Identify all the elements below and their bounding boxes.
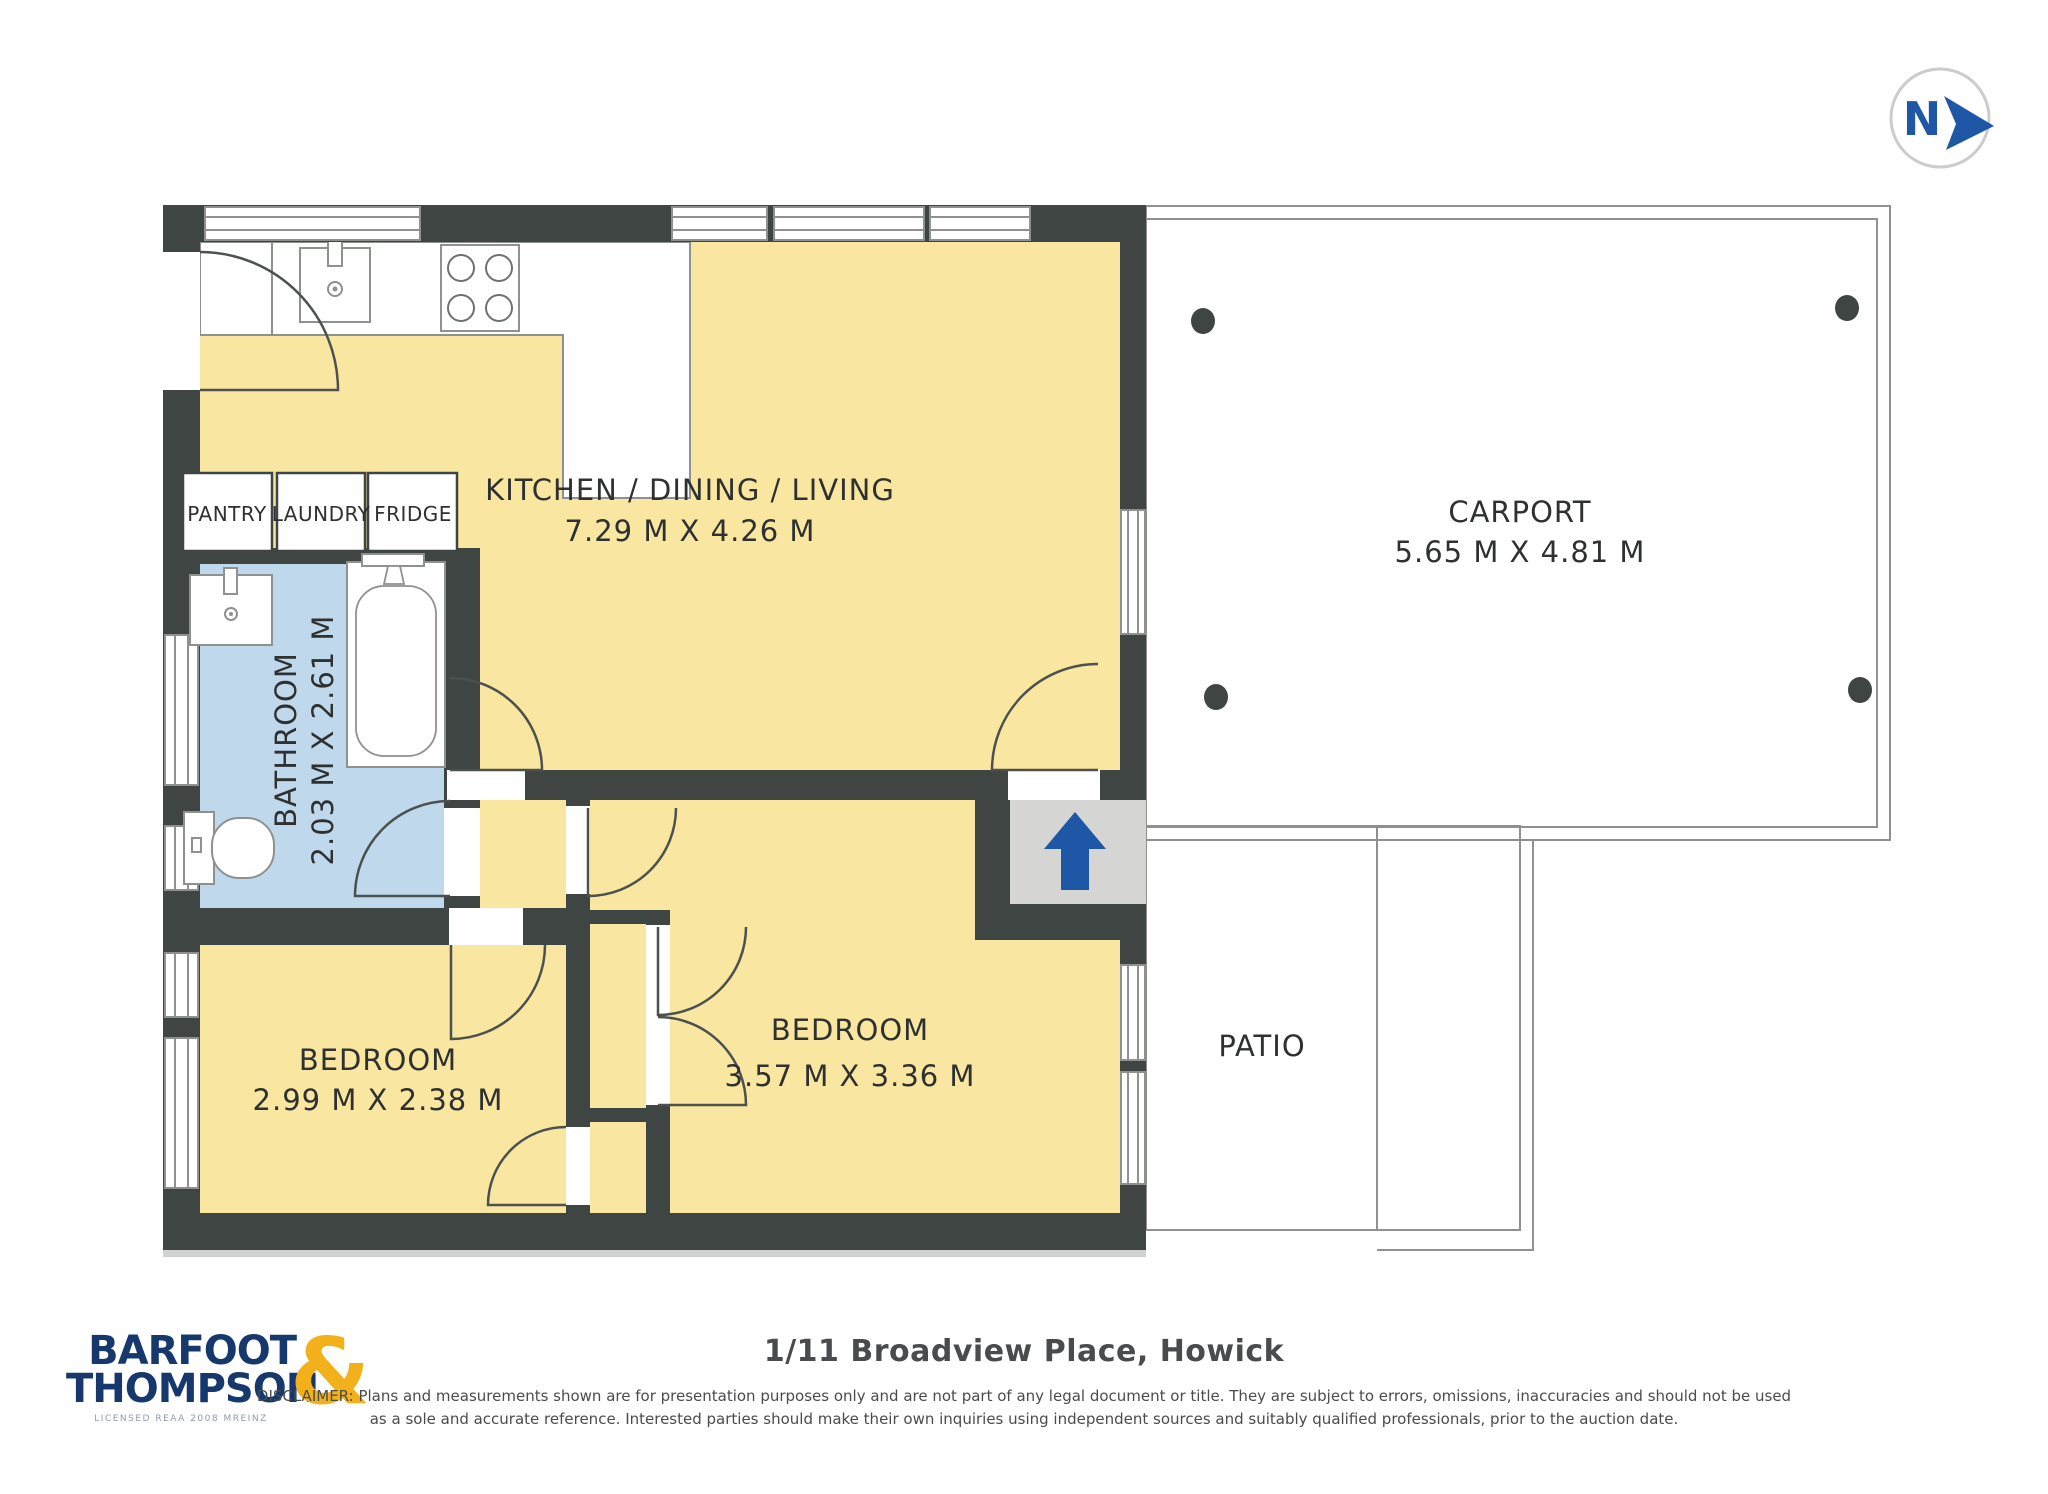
disclaimer: DISCLAIMER: Plans and measurements shown…	[0, 1385, 2048, 1430]
carport-post	[1848, 677, 1872, 703]
window	[672, 207, 767, 240]
bathroom-dims: 2.03 M X 2.61 M	[306, 615, 340, 866]
compass: N	[1891, 69, 1994, 167]
disclaimer-line2: as a sole and accurate reference. Intere…	[370, 1410, 1679, 1428]
laundry-label: LAUNDRY	[272, 502, 371, 526]
bedroom2-dims: 3.57 M X 3.36 M	[725, 1059, 976, 1093]
fridge-label: FRIDGE	[374, 502, 452, 526]
carport-post	[1204, 684, 1228, 710]
floor-plan: N KITCHEN / DINING / LIVING 7.29 M X 4.2…	[0, 0, 2048, 1494]
bathroom-label: BATHROOM	[269, 652, 303, 828]
property-address: 1/11 Broadview Place, Howick	[0, 1334, 2048, 1369]
disclaimer-line1: DISCLAIMER: Plans and measurements shown…	[257, 1387, 1791, 1405]
patio-label: PATIO	[1218, 1029, 1305, 1063]
toilet-icon	[184, 812, 274, 884]
carport-post	[1191, 308, 1215, 334]
bathtub-icon	[347, 554, 445, 767]
bedroom1-label: BEDROOM	[299, 1043, 457, 1077]
kerb-line	[1377, 840, 1533, 1250]
window	[1121, 1072, 1145, 1184]
window	[165, 953, 198, 1017]
pantry-label: PANTRY	[187, 502, 267, 526]
window	[1121, 510, 1145, 634]
kitchen-label: KITCHEN / DINING / LIVING	[485, 473, 895, 507]
ground-strip	[163, 1250, 1146, 1257]
carport-label: CARPORT	[1448, 495, 1591, 529]
window	[930, 207, 1030, 240]
window	[774, 207, 924, 240]
carport-dims: 5.65 M X 4.81 M	[1395, 535, 1646, 569]
window	[165, 1038, 198, 1188]
carport-post	[1835, 295, 1859, 321]
window	[1121, 965, 1145, 1060]
patio-surface	[1146, 826, 1377, 1230]
window	[165, 635, 198, 785]
bedroom1-dims: 2.99 M X 2.38 M	[253, 1083, 504, 1117]
window	[205, 207, 420, 240]
bathroom-sink-icon	[190, 568, 272, 645]
patio-area	[1146, 826, 1533, 1250]
kitchen-dims: 7.29 M X 4.26 M	[565, 514, 816, 548]
bedroom2-label: BEDROOM	[771, 1013, 929, 1047]
path-surface	[1377, 826, 1520, 1230]
compass-north-label: N	[1903, 92, 1942, 146]
